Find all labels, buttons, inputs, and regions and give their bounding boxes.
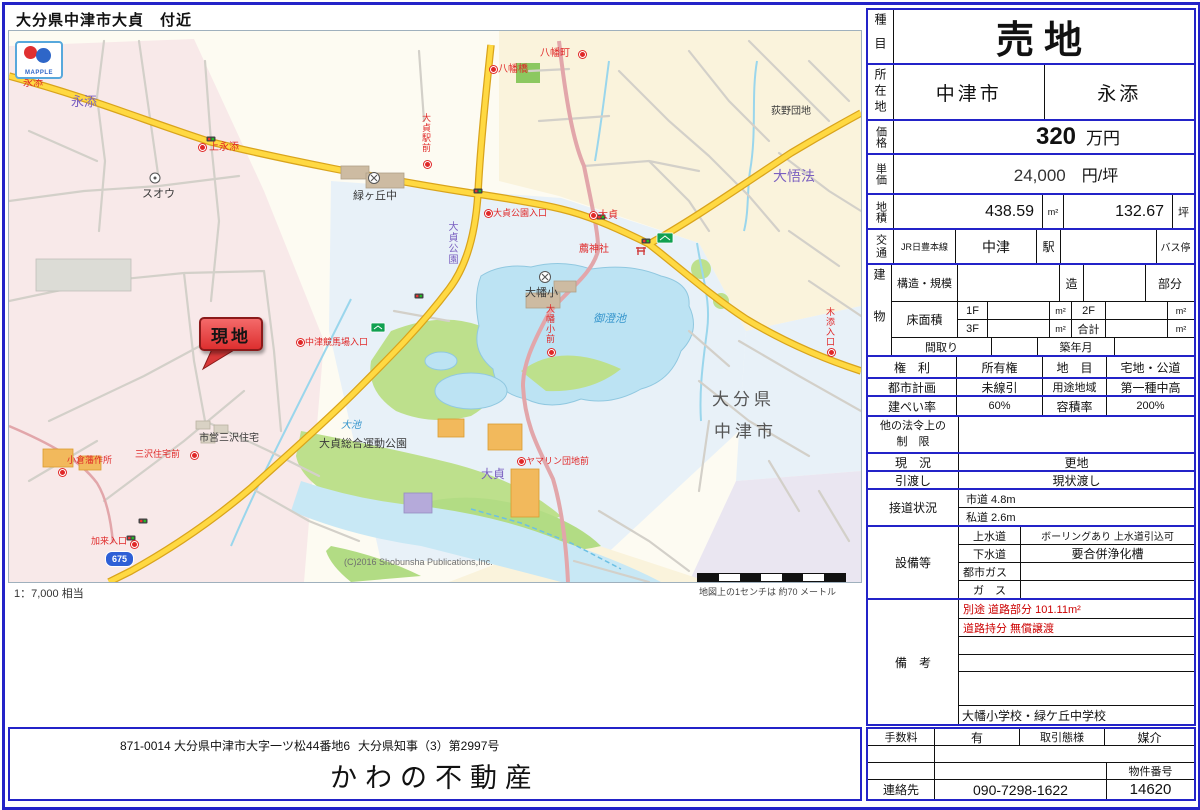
- facilities-label: 設備等: [868, 527, 959, 598]
- land-area-tsubo: 132.67: [1064, 195, 1173, 228]
- far-label: 容積率: [1043, 397, 1107, 415]
- bus-stop-icon: [490, 66, 497, 73]
- remark-blank-1: [959, 637, 1194, 654]
- map-scale-ratio: 1：7,000 相当: [14, 585, 84, 601]
- bus-stop-label: バス停: [1157, 230, 1194, 263]
- price-value: 320: [1036, 123, 1076, 151]
- price-label: 価格: [873, 126, 889, 148]
- land-area-label: 地積: [873, 201, 889, 223]
- f2-label: 2F: [1072, 302, 1106, 319]
- row-unit-price: 単価 24,000 円/坪: [868, 155, 1194, 195]
- built-label: 築年月: [1038, 338, 1115, 355]
- deal-row-contact: 連絡先 090-7298-1622 14620: [868, 780, 1194, 799]
- bus-stop-icon: [424, 161, 431, 168]
- land-category-value: 宅地・公道: [1107, 357, 1194, 377]
- city-planning-value: 未線引: [957, 379, 1043, 395]
- bus-stop-icon: [297, 339, 304, 346]
- map-scale-note: 地図上の1センチは 約70 メートル: [699, 585, 836, 598]
- f2-blank: [1106, 302, 1168, 319]
- bcr-value: 60%: [957, 397, 1043, 415]
- mapple-logo: MAPPLE: [15, 41, 63, 79]
- contact-label: 連絡先: [868, 780, 935, 799]
- sqm-unit: m²: [1043, 195, 1064, 228]
- part-label: 部分: [1146, 265, 1194, 301]
- f3-label: 3F: [958, 320, 988, 337]
- row-transport: 交通 JR日豊本線 中津 駅 バス停: [868, 230, 1194, 265]
- remarks-label: 備 考: [868, 600, 959, 724]
- agency-name: かわの不動産: [10, 756, 860, 795]
- current-state-value: 更地: [959, 454, 1194, 470]
- f3-unit: m²: [1050, 320, 1072, 337]
- city-gas-value: [1021, 563, 1194, 580]
- bus-stop-icon: [548, 349, 555, 356]
- row-price: 価格 320 万円: [868, 121, 1194, 155]
- location-label: 所在地: [872, 68, 889, 116]
- bus-stop-icon: [199, 144, 206, 151]
- transport-label: 交通: [873, 234, 889, 260]
- other-laws-blank: [959, 417, 1194, 452]
- contact-phone: 090-7298-1622: [935, 780, 1107, 799]
- deal-row-blank: [868, 746, 1194, 763]
- building-madori-row: 間取り 築年月: [892, 338, 1194, 355]
- bus-route-blank: [1061, 230, 1157, 263]
- deal-blank-value: [935, 746, 1194, 762]
- bus-stop-icon: [59, 469, 66, 476]
- location-city: 中津市: [894, 65, 1045, 119]
- far-value: 200%: [1107, 397, 1194, 415]
- total-blank: [1106, 320, 1168, 337]
- gas-label: ガ ス: [959, 581, 1021, 598]
- agency-license: 大分県知事（3）第2997号: [358, 737, 499, 754]
- floor-area-label: 床面積: [892, 302, 958, 337]
- price-unit: 万円: [1086, 124, 1120, 149]
- rail-line: JR日豊本線: [894, 230, 956, 263]
- structure-label: 構造・規模: [892, 265, 958, 301]
- row-coverage: 建ぺい率 60% 容積率 200%: [868, 397, 1194, 417]
- road-access-label: 接道状況: [868, 490, 959, 525]
- road-access-1: 市道 4.8m: [959, 490, 1194, 507]
- city-planning-label: 都市計画: [868, 379, 957, 395]
- route-shield-icon: 675: [105, 551, 134, 567]
- mapple-logo-globe-icon: [36, 48, 51, 63]
- remark-schools: 大幡小学校・緑ケ丘中学校: [959, 706, 1194, 724]
- f1-blank: [988, 302, 1050, 319]
- map-scale-bar: [697, 573, 846, 582]
- other-laws-label-2: 制 限: [897, 435, 930, 450]
- sewer-label: 下水道: [959, 545, 1021, 562]
- f1-label: 1F: [958, 302, 988, 319]
- row-remarks: 備 考 別途 道路部分 101.11m² 道路持分 無償譲渡 大幡小学校・緑ケ丘…: [868, 600, 1194, 724]
- tsubo-unit: 坪: [1173, 195, 1194, 228]
- row-city-planning: 都市計画 未線引 用途地域 第一種中高: [868, 379, 1194, 397]
- station-name: 中津: [956, 230, 1037, 263]
- property-no-label: 物件番号: [1107, 763, 1194, 779]
- rights-value: 所有権: [957, 357, 1043, 377]
- f2-unit: m²: [1168, 302, 1194, 319]
- agency-address: 871-0014 大分県中津市大字一ツ松44番地6: [120, 737, 350, 754]
- fee-value: 有: [935, 729, 1020, 745]
- land-area-sqm: 438.59: [894, 195, 1043, 228]
- row-category: 種目 売地: [868, 10, 1194, 65]
- bus-stop-icon: [828, 349, 835, 356]
- row-handover: 引渡し 現状渡し: [868, 472, 1194, 490]
- property-no-value: 14620: [1107, 780, 1194, 799]
- map-graphic: [9, 31, 861, 582]
- madori-blank: [992, 338, 1038, 355]
- mapple-logo-red-icon: [24, 46, 37, 59]
- deal-blank-3: [935, 763, 1107, 779]
- bus-stop-icon: [485, 210, 492, 217]
- structure-blank: [958, 265, 1060, 301]
- row-rights: 権 利 所有権 地 目 宅地・公道: [868, 357, 1194, 379]
- property-table: 種目 売地 所在地 中津市 永添 価格 320 万円 単価 24,000 円/坪…: [866, 8, 1196, 726]
- map-title: 大分県中津市大貞 付近: [16, 9, 192, 30]
- bus-stop-icon: [590, 212, 597, 219]
- unit-price-value: 24,000: [1014, 166, 1066, 186]
- sewer-value: 要合併浄化槽: [1021, 545, 1194, 562]
- row-current-state: 現 況 更地: [868, 454, 1194, 472]
- water-value: ボーリングあり 上水道引込可: [1021, 527, 1194, 544]
- category-value: 売地: [894, 10, 1194, 63]
- row-building: 建物 構造・規模 造 部分 床面積 1F m² 2F m²: [868, 265, 1194, 357]
- site-location-callout: 現地: [199, 317, 263, 351]
- deal-blank-label: [868, 746, 935, 762]
- land-category-label: 地 目: [1043, 357, 1107, 377]
- road-access-2: 私道 2.6m: [959, 508, 1194, 525]
- building-label: 建物: [871, 268, 888, 352]
- zoning-value: 第一種中高: [1107, 379, 1194, 395]
- unit-price-label: 単価: [873, 163, 889, 185]
- remark-blank-2: [959, 655, 1194, 671]
- row-road-access: 接道状況 市道 4.8m 私道 2.6m: [868, 490, 1194, 527]
- city-gas-label: 都市ガス: [959, 563, 1021, 580]
- bcr-label: 建ぺい率: [868, 397, 957, 415]
- map: 永添 永添 上永添 スオウ 緑ヶ丘中 八幡町 八幡橋 荻野団地 大悟法 大貞駅前…: [8, 30, 862, 583]
- bus-stop-icon: [131, 541, 138, 548]
- f1-unit: m²: [1050, 302, 1072, 319]
- unit-price-unit: 円/坪: [1082, 162, 1118, 186]
- transaction-type-label: 取引態様: [1020, 729, 1105, 745]
- total-unit: m²: [1168, 320, 1194, 337]
- deal-blank-2: [868, 763, 935, 779]
- station-suffix: 駅: [1037, 230, 1061, 263]
- deal-row-property-no-label: 物件番号: [868, 763, 1194, 780]
- current-state-label: 現 況: [868, 454, 959, 470]
- handover-value: 現状渡し: [959, 472, 1194, 488]
- mapple-logo-text: MAPPLE: [17, 70, 61, 76]
- deal-table: 手数料 有 取引態様 媒介 物件番号 連絡先 090-7298-1622 146…: [866, 727, 1196, 801]
- structure-suffix: 造: [1060, 265, 1084, 301]
- facility-icon: [150, 173, 160, 183]
- gas-value: [1021, 581, 1194, 598]
- bus-stop-icon: [518, 458, 525, 465]
- building-structure-row: 構造・規模 造 部分: [892, 265, 1194, 302]
- madori-label: 間取り: [892, 338, 992, 355]
- structure-blank2: [1084, 265, 1146, 301]
- zoning-label: 用途地域: [1043, 379, 1107, 395]
- water-label: 上水道: [959, 527, 1021, 544]
- bus-stop-icon: [191, 452, 198, 459]
- category-label: 種目: [872, 13, 889, 61]
- remark-road-share: 道路持分 無償譲渡: [959, 619, 1194, 636]
- remark-blank-3: [959, 672, 1194, 705]
- bus-stop-icon: [579, 51, 586, 58]
- agency-box: 871-0014 大分県中津市大字一ツ松44番地6 大分県知事（3）第2997号…: [8, 727, 862, 801]
- row-land-area: 地積 438.59 m² 132.67 坪: [868, 195, 1194, 230]
- remark-road-portion: 別途 道路部分 101.11m²: [959, 600, 1194, 618]
- f3-blank: [988, 320, 1050, 337]
- building-floor-area-row: 床面積 1F m² 2F m² 3F m² 合計: [892, 302, 1194, 338]
- other-laws-label-1: 他の法令上の: [880, 419, 946, 434]
- built-blank: [1115, 338, 1194, 355]
- row-location: 所在地 中津市 永添: [868, 65, 1194, 121]
- deal-row-fee: 手数料 有 取引態様 媒介: [868, 729, 1194, 746]
- total-label: 合計: [1072, 320, 1106, 337]
- row-facilities: 設備等 上水道 ボーリングあり 上水道引込可 下水道 要合併浄化槽 都市ガス ガ…: [868, 527, 1194, 600]
- row-other-laws: 他の法令上の 制 限: [868, 417, 1194, 454]
- fee-label: 手数料: [868, 729, 935, 745]
- transaction-type-value: 媒介: [1105, 729, 1194, 745]
- rights-label: 権 利: [868, 357, 957, 377]
- location-district: 永添: [1045, 65, 1195, 119]
- handover-label: 引渡し: [868, 472, 959, 488]
